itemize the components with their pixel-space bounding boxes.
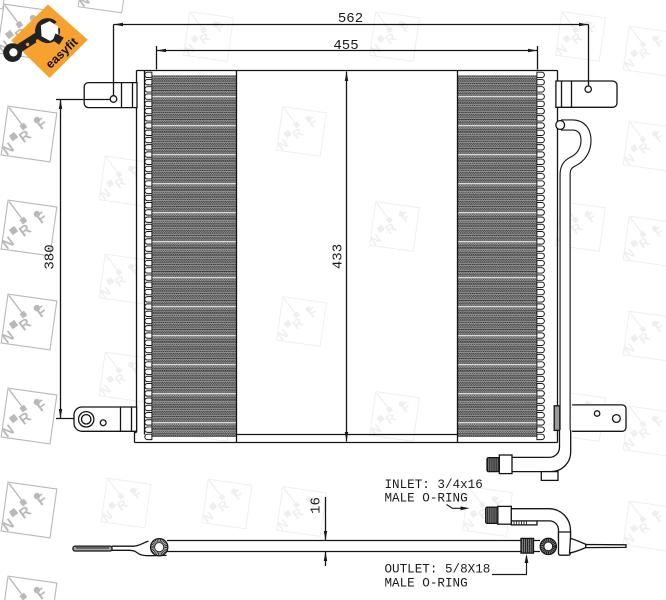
svg-text:380: 380 [43, 244, 59, 269]
svg-text:OUTLET: 5/8X18: OUTLET: 5/8X18 [385, 563, 491, 577]
svg-text:MALE O-RING: MALE O-RING [385, 492, 468, 506]
svg-text:433: 433 [331, 244, 347, 269]
svg-text:455: 455 [333, 38, 358, 54]
svg-text:562: 562 [338, 11, 363, 27]
svg-text:16: 16 [309, 497, 325, 514]
svg-text:MALE O-RING: MALE O-RING [385, 577, 468, 591]
svg-text:INLET: 3/4x16: INLET: 3/4x16 [385, 478, 483, 492]
